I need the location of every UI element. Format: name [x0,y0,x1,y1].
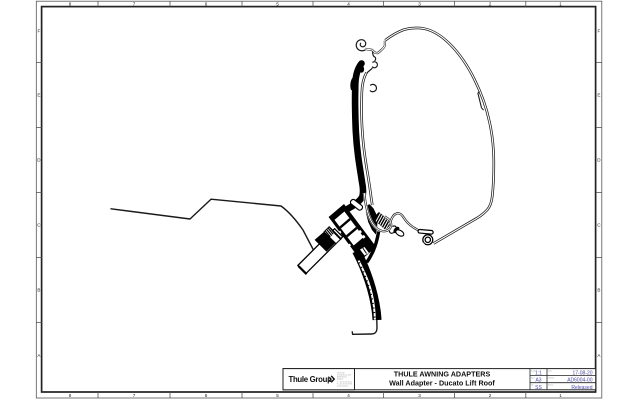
svg-text:F: F [37,29,40,34]
svg-text:F: F [597,29,600,34]
svg-text:thule group bv: thule group bv [337,385,348,388]
svg-text:A3: A3 [535,378,541,384]
svg-text:1: 1 [559,393,562,398]
svg-text:7: 7 [133,393,136,398]
svg-text:Number: Number [548,377,555,379]
svg-text:7: 7 [133,2,136,7]
svg-text:6: 6 [205,2,208,7]
svg-text:E: E [597,93,600,98]
svg-text:1:1: 1:1 [535,371,542,377]
svg-text:1: 1 [559,2,562,7]
svg-text:Size: Size [531,377,535,379]
svg-text:4: 4 [347,393,350,398]
svg-text:THULE AWNING ADAPTERS: THULE AWNING ADAPTERS [394,370,491,379]
svg-text:Belgium: Belgium [337,379,344,381]
svg-text:3: 3 [418,2,421,7]
svg-text:B: B [37,288,40,293]
svg-text:2: 2 [489,393,492,398]
svg-text:Wall Adapter - Ducato Lift Roo: Wall Adapter - Ducato Lift Roof [389,378,495,387]
svg-text:8: 8 [69,393,72,398]
svg-text:Thule Group: Thule Group [289,375,333,384]
svg-text:B: B [597,288,600,293]
svg-text:Released: Released [571,385,592,391]
svg-text:8: 8 [69,2,72,7]
svg-text:17-08-20: 17-08-20 [572,371,592,377]
svg-text:SS: SS [535,385,542,391]
svg-text:4: 4 [347,2,350,7]
svg-text:5: 5 [276,393,279,398]
svg-text:6: 6 [205,393,208,398]
svg-text:Status: Status [548,384,553,387]
svg-text:3: 3 [418,393,421,398]
svg-text:2: 2 [489,2,492,7]
svg-text:Date: Date [548,369,552,372]
svg-text:AD6004-00: AD6004-00 [567,378,593,384]
svg-text:5: 5 [276,2,279,7]
svg-text:E: E [37,93,40,98]
